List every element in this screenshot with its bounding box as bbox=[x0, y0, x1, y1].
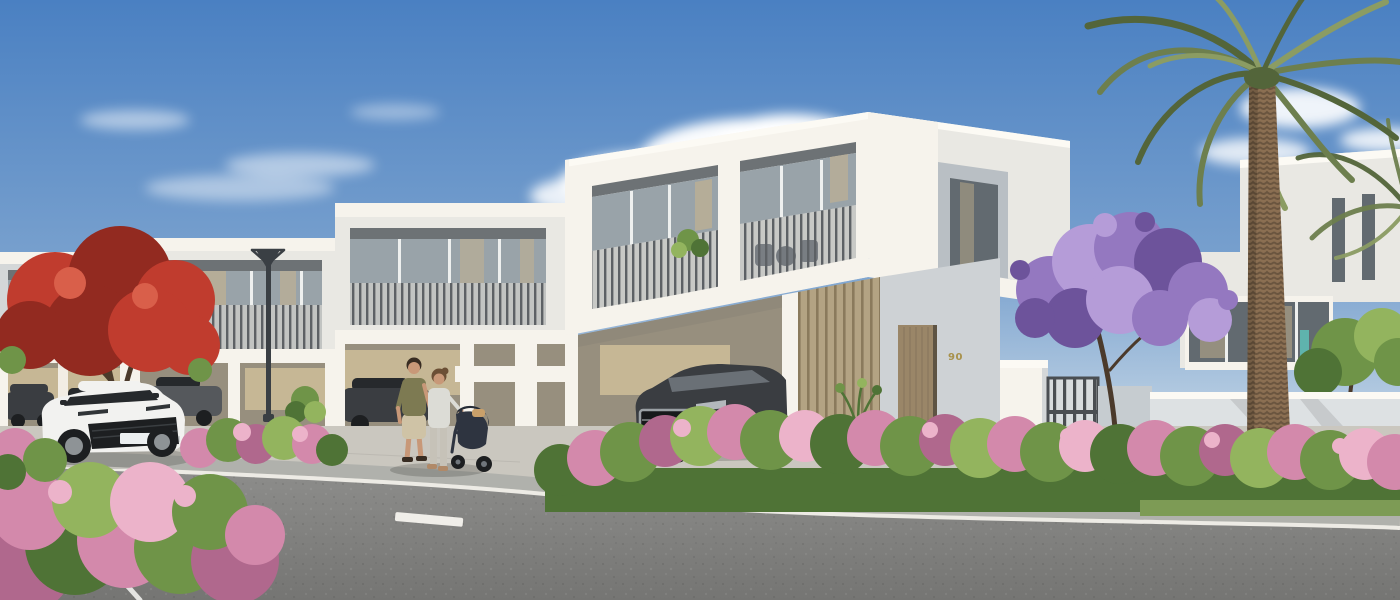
house-number: 90 bbox=[948, 352, 963, 363]
scene-canvas: 90 bbox=[0, 0, 1400, 600]
tall-window bbox=[950, 178, 998, 272]
townhouse-street-render: 90 bbox=[0, 0, 1400, 600]
balcony-railing bbox=[350, 283, 546, 325]
front-door bbox=[898, 325, 937, 430]
balcony-bay-right bbox=[740, 142, 856, 281]
balcony-bay-left bbox=[592, 165, 718, 309]
